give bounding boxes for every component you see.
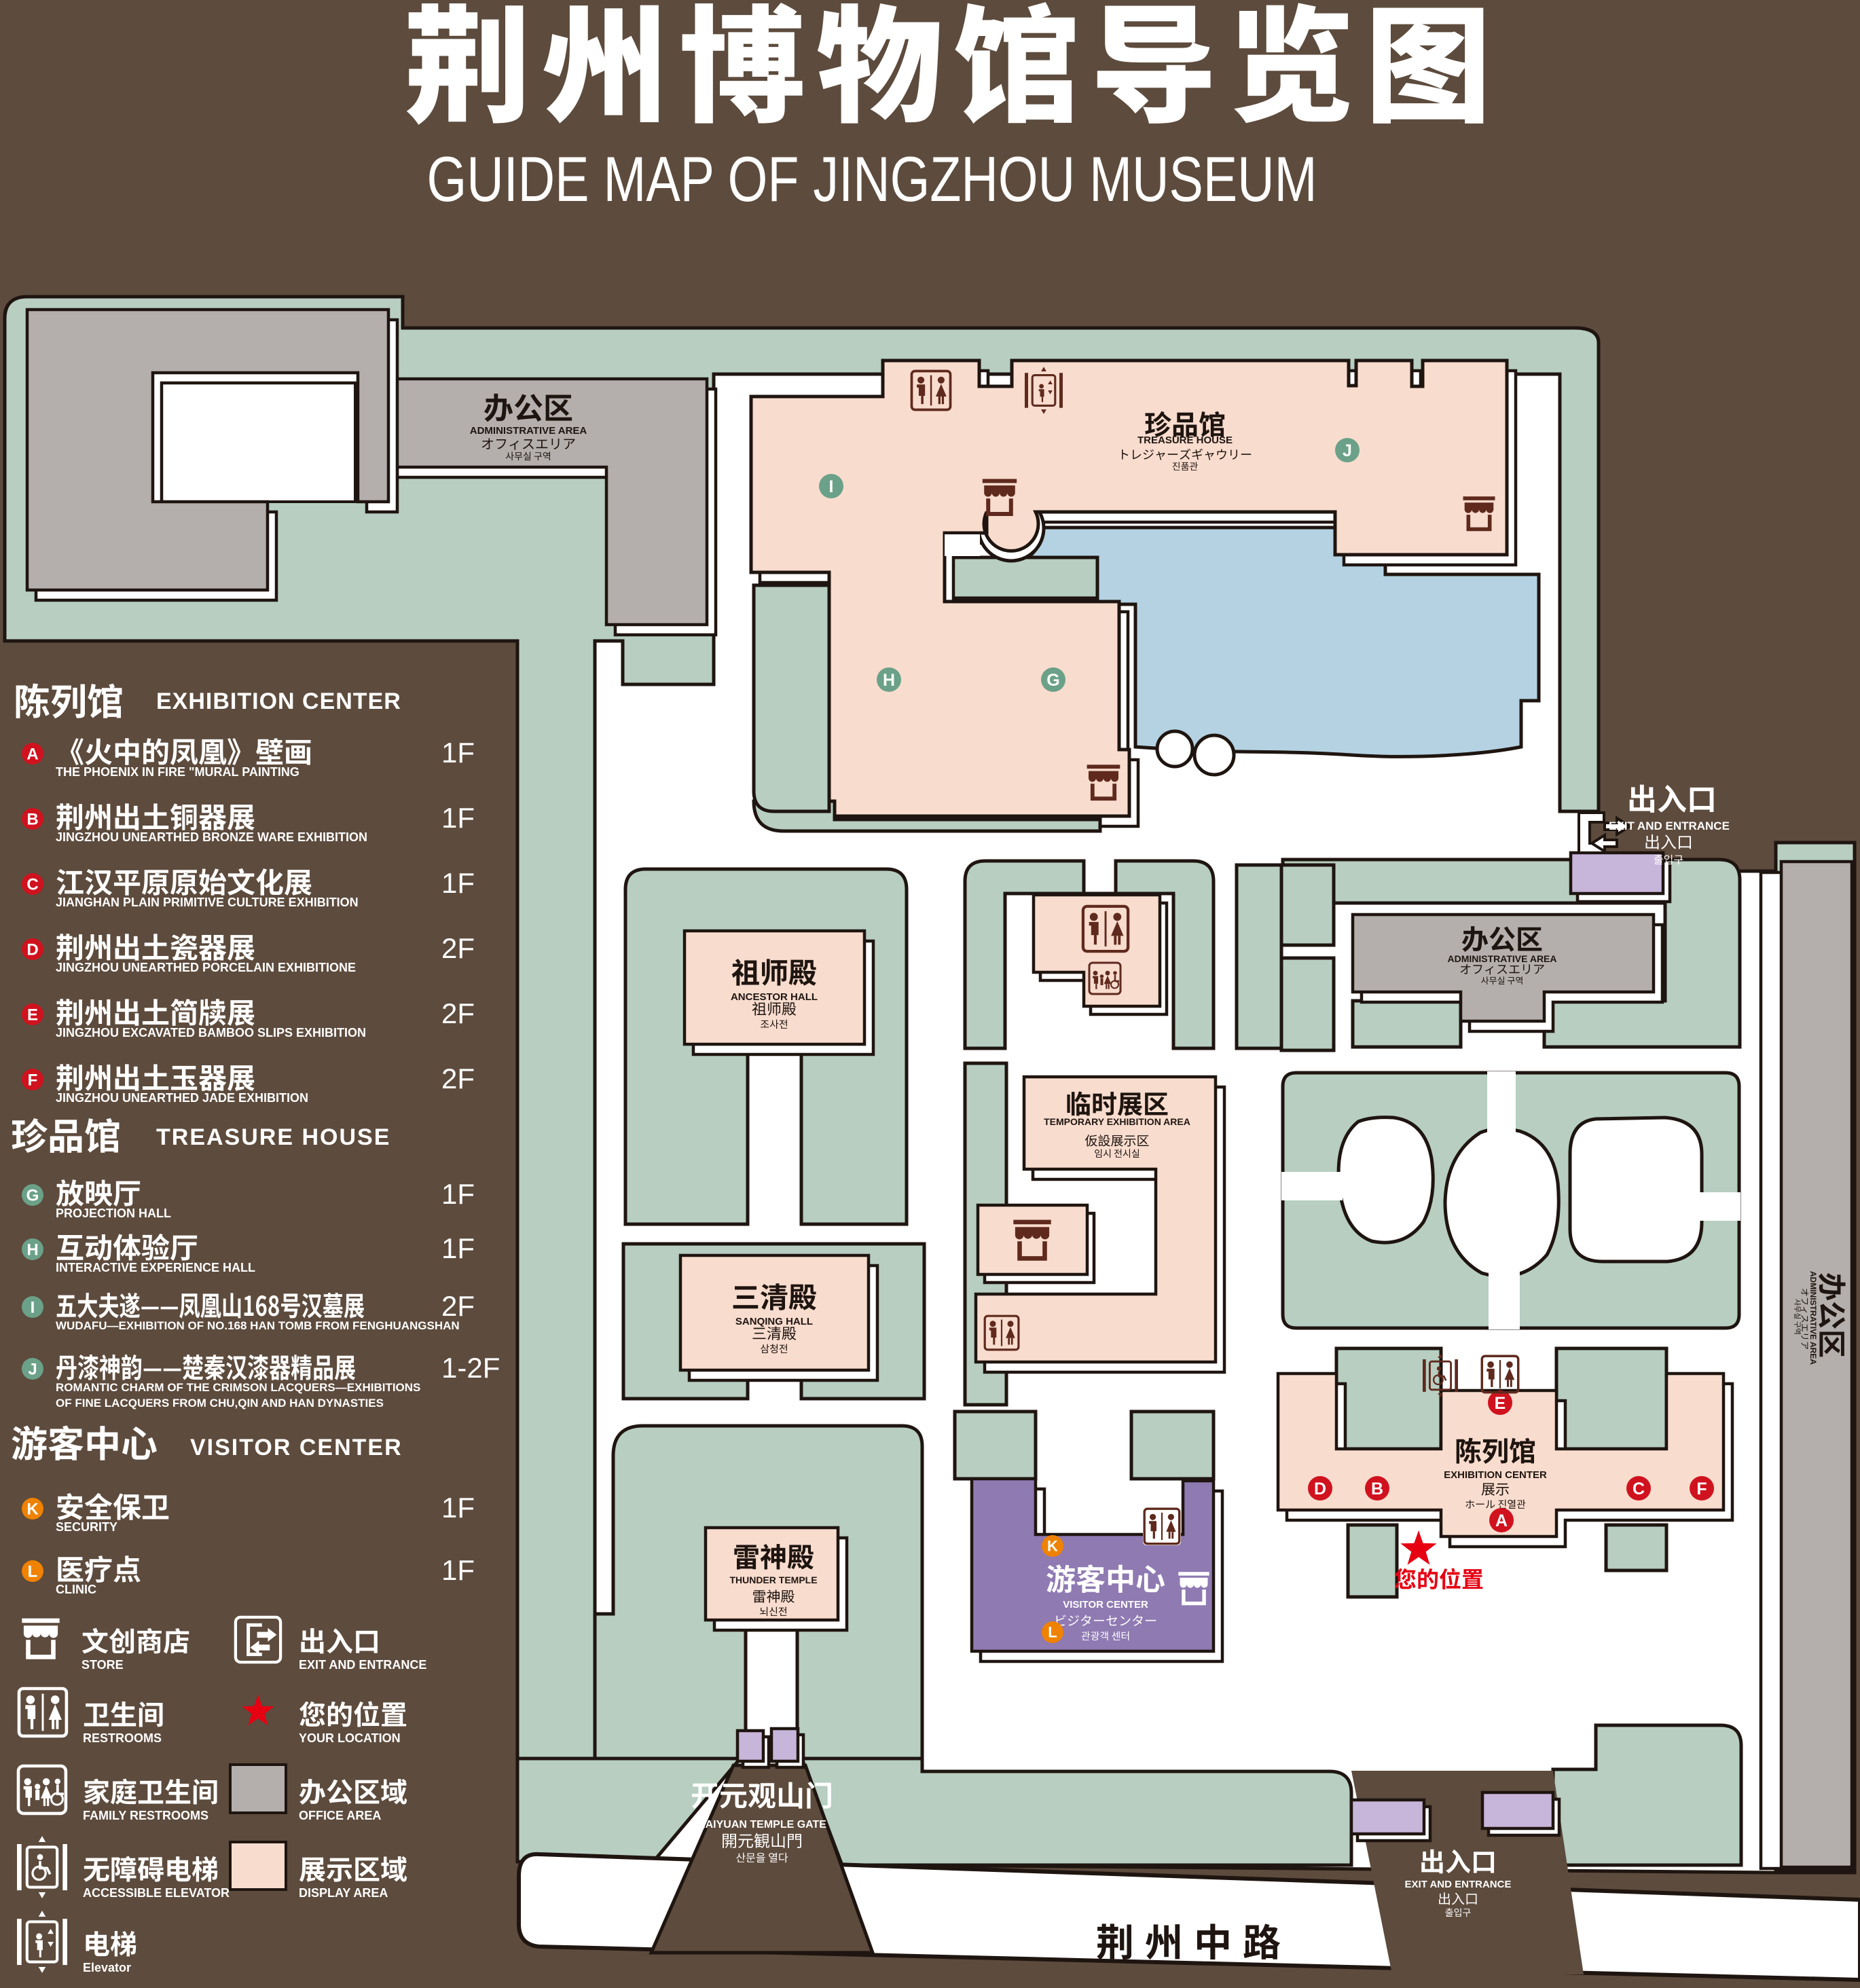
svg-text:RESTROOMS: RESTROOMS bbox=[83, 1731, 162, 1745]
svg-text:THUNDER TEMPLE: THUNDER TEMPLE bbox=[729, 1575, 817, 1585]
svg-text:2F: 2F bbox=[441, 1063, 475, 1094]
svg-text:CLINIC: CLINIC bbox=[56, 1583, 96, 1596]
svg-text:JINGZHOU UNEARTHED JADE EXHIBI: JINGZHOU UNEARTHED JADE EXHIBITION bbox=[56, 1091, 308, 1105]
svg-text:J: J bbox=[28, 1360, 37, 1378]
svg-text:1-2F: 1-2F bbox=[441, 1352, 500, 1384]
svg-text:TREASURE HOUSE: TREASURE HOUSE bbox=[1137, 435, 1233, 446]
svg-text:ACCESSIBLE ELEVATOR: ACCESSIBLE ELEVATOR bbox=[83, 1886, 230, 1900]
svg-text:YOUR LOCATION: YOUR LOCATION bbox=[299, 1731, 401, 1745]
svg-text:GUIDE MAP OF JINGZHOU MUSEUM: GUIDE MAP OF JINGZHOU MUSEUM bbox=[427, 143, 1317, 215]
svg-text:C: C bbox=[1633, 1479, 1645, 1498]
svg-text:TEMPORARY EXHIBITION AREA: TEMPORARY EXHIBITION AREA bbox=[1044, 1116, 1190, 1127]
svg-text:D: D bbox=[1314, 1479, 1326, 1498]
svg-text:OF FINE LACQUERS FROM CHU,QIN: OF FINE LACQUERS FROM CHU,QIN AND HAN DY… bbox=[56, 1397, 384, 1410]
svg-text:SANQING HALL: SANQING HALL bbox=[735, 1316, 813, 1327]
svg-text:EXIT AND ENTRANCE: EXIT AND ENTRANCE bbox=[1609, 820, 1730, 832]
svg-text:I: I bbox=[829, 477, 834, 496]
svg-text:EXIT AND ENTRANCE: EXIT AND ENTRANCE bbox=[299, 1658, 426, 1672]
svg-text:F: F bbox=[1696, 1479, 1707, 1498]
svg-text:A: A bbox=[1495, 1511, 1508, 1530]
svg-text:J: J bbox=[1343, 441, 1352, 460]
svg-text:ADMINISTRATIVE AREA: ADMINISTRATIVE AREA bbox=[1808, 1271, 1818, 1365]
svg-text:JINGZHOU UNEARTHED BRONZE WARE: JINGZHOU UNEARTHED BRONZE WARE EXHIBITIO… bbox=[56, 830, 367, 844]
svg-text:H: H bbox=[26, 1240, 38, 1259]
svg-text:1F: 1F bbox=[441, 1232, 475, 1264]
svg-text:1F: 1F bbox=[441, 1492, 475, 1524]
svg-text:OFFICE AREA: OFFICE AREA bbox=[299, 1809, 381, 1822]
svg-text:KAIYUAN TEMPLE GATE: KAIYUAN TEMPLE GATE bbox=[697, 1819, 826, 1830]
svg-text:G: G bbox=[26, 1186, 39, 1204]
svg-text:L: L bbox=[1048, 1624, 1057, 1641]
svg-text:ROMANTIC CHARM OF THE CRIMSON: ROMANTIC CHARM OF THE CRIMSON LACQUERS—E… bbox=[56, 1381, 420, 1394]
svg-text:K: K bbox=[1047, 1538, 1058, 1555]
svg-text:FAMILY RESTROOMS: FAMILY RESTROOMS bbox=[83, 1809, 208, 1822]
svg-text:SECURITY: SECURITY bbox=[56, 1520, 117, 1534]
svg-text:1F: 1F bbox=[441, 737, 475, 769]
svg-text:H: H bbox=[883, 671, 895, 690]
svg-text:2F: 2F bbox=[441, 1290, 475, 1322]
svg-text:VISITOR CENTER: VISITOR CENTER bbox=[1063, 1599, 1148, 1610]
svg-text:DISPLAY AREA: DISPLAY AREA bbox=[299, 1886, 388, 1900]
svg-text:WUDAFU—EXHIBITION OF NO.168 HA: WUDAFU—EXHIBITION OF NO.168 HAN TOMB FRO… bbox=[56, 1319, 460, 1332]
svg-text:2F: 2F bbox=[441, 932, 475, 964]
svg-text:THE PHOENIX IN FIRE "MURAL PAI: THE PHOENIX IN FIRE "MURAL PAINTING bbox=[56, 765, 299, 779]
svg-text:1F: 1F bbox=[441, 802, 475, 834]
svg-text:EXHIBITION CENTER: EXHIBITION CENTER bbox=[156, 688, 401, 714]
svg-text:JIANGHAN PLAIN PRIMITIVE CULTU: JIANGHAN PLAIN PRIMITIVE CULTURE EXHIBIT… bbox=[56, 896, 359, 909]
svg-text:F: F bbox=[28, 1071, 38, 1089]
svg-text:JINGZHOU EXCAVATED BAMBOO SLIP: JINGZHOU EXCAVATED BAMBOO SLIPS EXHIBITI… bbox=[56, 1026, 366, 1039]
svg-text:A: A bbox=[26, 745, 38, 763]
svg-text:C: C bbox=[26, 875, 38, 894]
svg-text:ANCESTOR HALL: ANCESTOR HALL bbox=[731, 991, 818, 1003]
svg-text:STORE: STORE bbox=[81, 1658, 124, 1672]
svg-text:ADMINISTRATIVE AREA: ADMINISTRATIVE AREA bbox=[470, 425, 587, 437]
svg-text:G: G bbox=[1046, 671, 1059, 690]
svg-text:B: B bbox=[26, 810, 38, 828]
svg-text:1F: 1F bbox=[441, 867, 475, 899]
svg-text:K: K bbox=[26, 1500, 39, 1518]
svg-text:D: D bbox=[26, 940, 38, 959]
svg-text:Elevator: Elevator bbox=[83, 1961, 131, 1974]
svg-text:L: L bbox=[28, 1562, 38, 1581]
svg-text:I: I bbox=[31, 1298, 35, 1317]
svg-text:PROJECTION HALL: PROJECTION HALL bbox=[56, 1207, 171, 1220]
svg-text:JINGZHOU UNEARTHED PORCELAIN E: JINGZHOU UNEARTHED PORCELAIN EXHIBITIONE bbox=[56, 961, 356, 974]
svg-text:2F: 2F bbox=[441, 997, 475, 1029]
svg-text:E: E bbox=[27, 1006, 38, 1024]
svg-text:E: E bbox=[1495, 1394, 1506, 1413]
svg-text:ADMINISTRATIVE AREA: ADMINISTRATIVE AREA bbox=[1448, 953, 1557, 964]
svg-text:VISITOR CENTER: VISITOR CENTER bbox=[190, 1435, 403, 1460]
svg-text:INTERACTIVE EXPERIENCE HALL: INTERACTIVE EXPERIENCE HALL bbox=[56, 1261, 255, 1274]
svg-text:B: B bbox=[1371, 1479, 1383, 1498]
svg-text:EXHIBITION CENTER: EXHIBITION CENTER bbox=[1444, 1469, 1547, 1481]
svg-text:TREASURE HOUSE: TREASURE HOUSE bbox=[156, 1124, 390, 1150]
svg-text:1F: 1F bbox=[441, 1554, 475, 1586]
svg-text:EXIT AND ENTRANCE: EXIT AND ENTRANCE bbox=[1405, 1879, 1512, 1890]
svg-text:1F: 1F bbox=[441, 1178, 475, 1210]
